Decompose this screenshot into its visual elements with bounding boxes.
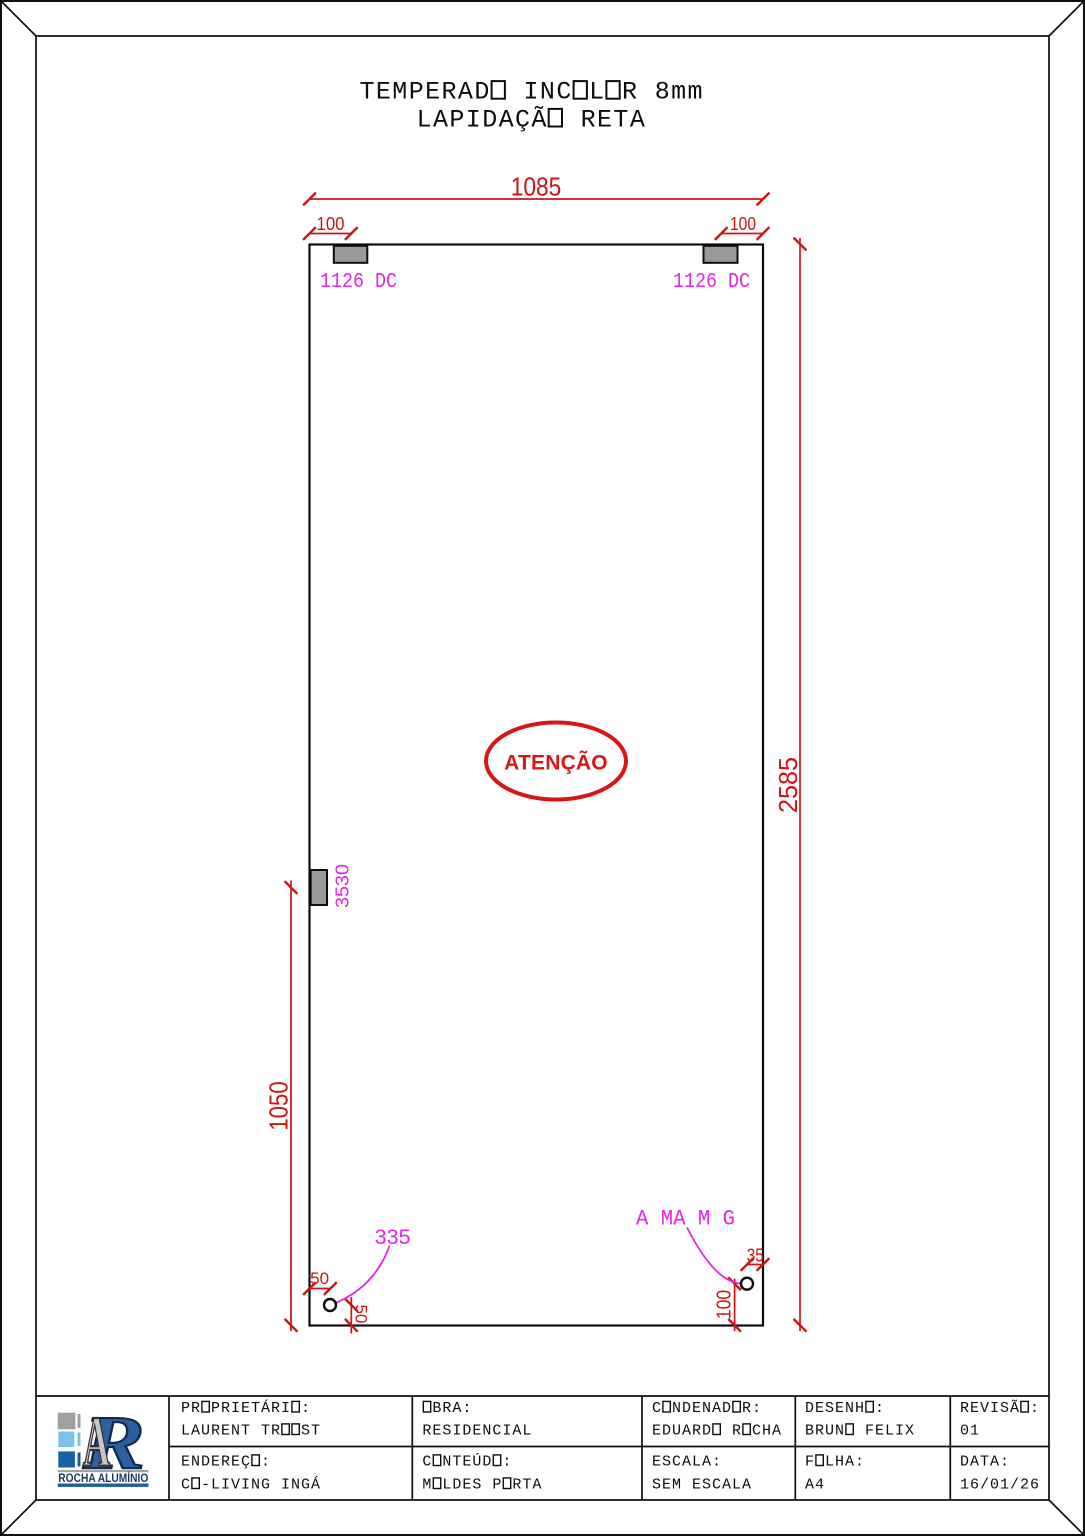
svg-text:2585: 2585 xyxy=(773,757,803,813)
svg-text:SEM ESCALA: SEM ESCALA xyxy=(652,1477,752,1494)
svg-text:LAPIDAÇÃ RETA: LAPIDAÇÃ RETA xyxy=(417,105,647,135)
svg-text:A4: A4 xyxy=(805,1477,825,1494)
svg-text:EDUARD R CHA: EDUARD R CHA xyxy=(652,1423,782,1440)
svg-text:ROCHA ALUMÍNIO: ROCHA ALUMÍNIO xyxy=(58,1470,148,1485)
svg-text:LAURENT TR ST: LAURENT TR ST xyxy=(181,1423,321,1440)
svg-text:1126 DC: 1126 DC xyxy=(673,271,750,294)
svg-text:100: 100 xyxy=(730,214,756,234)
svg-text:DATA:: DATA: xyxy=(960,1454,1010,1471)
svg-text:1126 DC: 1126 DC xyxy=(320,271,397,294)
svg-text:1050: 1050 xyxy=(264,1081,294,1130)
svg-text:35: 35 xyxy=(747,1245,764,1265)
svg-text:F LHA:: F LHA: xyxy=(805,1454,865,1471)
svg-text:01: 01 xyxy=(960,1423,980,1440)
svg-text:ESCALA:: ESCALA: xyxy=(652,1454,722,1471)
svg-text:16/01/26: 16/01/26 xyxy=(960,1477,1040,1494)
svg-text:3530: 3530 xyxy=(332,864,353,908)
svg-text:TEMPERAD INC L R 8mm: TEMPERAD INC L R 8mm xyxy=(360,78,704,107)
svg-text:ENDEREÇ :: ENDEREÇ : xyxy=(181,1454,271,1471)
svg-text:1085: 1085 xyxy=(511,172,562,202)
svg-text:RESIDENCIAL: RESIDENCIAL xyxy=(422,1423,532,1440)
svg-text:50: 50 xyxy=(352,1305,371,1324)
svg-text:100: 100 xyxy=(317,214,345,234)
svg-text:BRUN FELIX: BRUN FELIX xyxy=(805,1423,915,1440)
svg-text:C NDENAD R:: C NDENAD R: xyxy=(652,1400,762,1417)
svg-text:BRA:: BRA: xyxy=(422,1400,472,1417)
svg-text:50: 50 xyxy=(310,1269,329,1288)
svg-text:335: 335 xyxy=(375,1226,411,1249)
svg-text:A MA M G: A MA M G xyxy=(636,1207,735,1232)
svg-text:ATENÇÃO: ATENÇÃO xyxy=(504,752,608,775)
svg-text:C -LIVING INGÁ: C -LIVING INGÁ xyxy=(181,1476,321,1494)
svg-text:100: 100 xyxy=(713,1290,735,1320)
